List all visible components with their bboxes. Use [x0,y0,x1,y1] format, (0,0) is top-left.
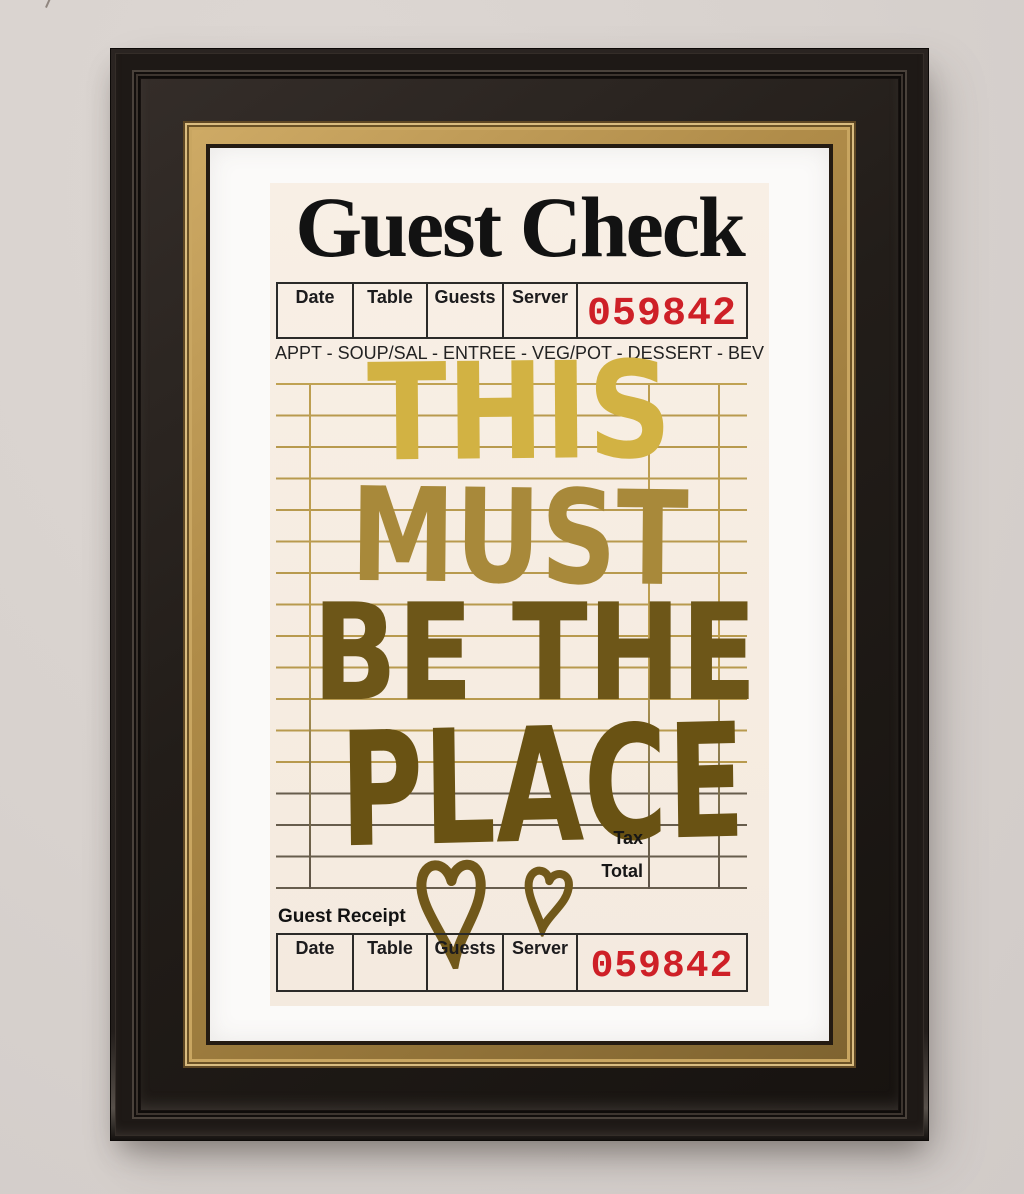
column-server: Server [504,284,578,337]
mat-board: Guest Check Date Table Guests Server 059… [210,148,829,1041]
frame-inner-lip: Guest Check Date Table Guests Server 059… [206,144,833,1045]
frame-ridge-steps: Guest Check Date Table Guests Server 059… [132,70,907,1119]
column-date: Date [278,284,354,337]
receipt-table: Date Table Guests Server 059842 [276,933,748,992]
message-word-place: PLACE [339,704,700,871]
frame-outer-band: Guest Check Date Table Guests Server 059… [110,48,929,1141]
picture-frame: Guest Check Date Table Guests Server 059… [110,48,929,1141]
column-guests: Guests [428,284,504,337]
nail-mark [45,0,51,8]
guest-check-print: Guest Check Date Table Guests Server 059… [270,183,769,1006]
wall: Guest Check Date Table Guests Server 059… [0,0,1024,1194]
check-number-top: 059842 [587,292,737,337]
receipt-column-guests: Guests [428,935,504,990]
receipt-heading: Guest Receipt [278,906,406,928]
receipt-column-server: Server [504,935,578,990]
column-table: Table [354,284,428,337]
guest-check-title: Guest Check [270,184,769,270]
tax-label: Tax [523,825,643,852]
receipt-number-cell: 059842 [578,935,746,990]
receipt-column-table: Table [354,935,428,990]
receipt-column-date: Date [278,935,354,990]
check-number-cell: 059842 [578,284,746,337]
check-number-bottom: 059842 [591,945,734,988]
gold-fillet: Guest Check Date Table Guests Server 059… [183,121,856,1068]
frame-flat-band: Guest Check Date Table Guests Server 059… [115,53,924,1136]
order-header-table: Date Table Guests Server 059842 [276,282,748,339]
frame-inner-slope: Guest Check Date Table Guests Server 059… [141,79,898,1110]
heart-icon-small [517,860,578,940]
